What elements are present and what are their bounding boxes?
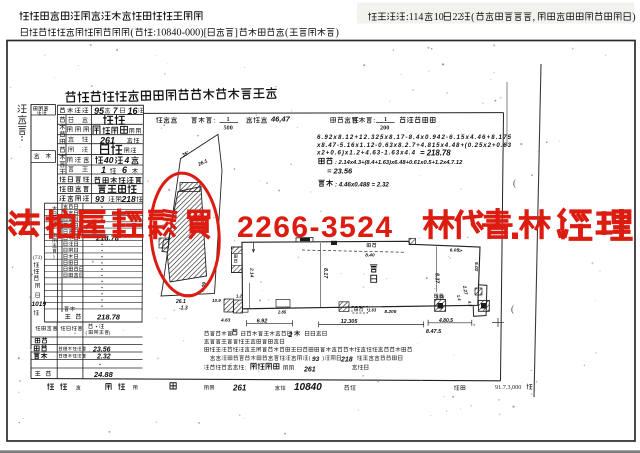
svg-text:35': 35' [181,150,190,159]
svg-text:): ) [632,12,635,23]
svg-text:4: 4 [124,155,130,165]
svg-text:): ) [322,355,324,362]
svg-text:26.1: 26.1 [196,158,208,168]
svg-text:1.4: 1.4 [456,294,462,301]
svg-text:8.40: 8.40 [365,253,375,259]
svg-text:12.305: 12.305 [341,319,359,325]
svg-text:91.7.3,000: 91.7.3,000 [495,384,521,391]
svg-text:10: 10 [434,12,444,23]
svg-text:6.92x8.12+12.325x8.17-8.4x0.94: 6.92x8.12+12.325x8.17-8.4x0.942-6.15x4.4… [317,134,512,141]
svg-text::10840-000)[: :10840-000)[ [153,28,207,39]
svg-text:1: 1 [384,116,387,123]
svg-text:1: 1 [101,165,106,175]
svg-text:6: 6 [122,165,128,175]
svg-text:): ) [53,253,55,260]
svg-text::: : [373,117,375,125]
svg-text:1.63: 1.63 [368,308,377,313]
svg-text:218: 218 [121,194,136,204]
svg-text:(: ( [86,330,88,337]
svg-text:2.27: 2.27 [462,284,469,295]
svg-text:22: 22 [452,12,462,23]
svg-text:24.88: 24.88 [93,370,114,379]
svg-text:8.37: 8.37 [434,273,440,284]
svg-text:8.47.5: 8.47.5 [426,329,442,335]
svg-text:]: ] [235,28,238,39]
svg-text:(: ( [309,355,311,362]
svg-text:= 23.56: = 23.56 [327,167,353,176]
svg-text:46,47: 46,47 [270,115,291,124]
svg-text::: : [245,365,247,371]
svg-text:26.1: 26.1 [175,299,186,305]
svg-text:1019: 1019 [32,301,47,308]
svg-text:200: 200 [380,125,389,132]
svg-text:10840: 10840 [294,382,322,393]
svg-text:2.32: 2.32 [96,354,111,361]
svg-text:-1.3: -1.3 [179,306,188,312]
svg-text:: 2.14x4.3+(8.4+1.63)x6.48+0.6: : 2.14x4.3+(8.4+1.63)x6.48+0.61x0.5+1.2x… [335,160,463,166]
svg-text:93: 93 [95,194,105,204]
svg-text:= 218.78: = 218.78 [420,148,451,157]
svg-text:: 4.46x0.488 = 2.32: : 4.46x0.488 = 2.32 [335,182,389,189]
svg-text:2: 2 [288,332,293,339]
svg-text:6.92: 6.92 [257,318,268,324]
svg-text:93: 93 [312,356,320,363]
svg-text:8.205: 8.205 [384,309,396,315]
svg-text:4.63: 4.63 [220,318,231,324]
svg-text:218.78: 218.78 [96,313,121,322]
svg-text::: : [213,117,215,125]
svg-text:40: 40 [103,155,114,165]
svg-text:95: 95 [94,106,105,116]
svg-text:261: 261 [303,367,316,374]
svg-text:23.56: 23.56 [92,346,111,353]
svg-text:1.2: 1.2 [236,294,242,299]
svg-text:(: ( [511,304,514,314]
svg-text:4.80.5: 4.80.5 [438,318,453,324]
svg-text::114: :114 [406,12,423,23]
svg-text:x8.47-5.16x1.12-0.63x8.2.7+4.8: x8.47-5.16x1.12-0.63x8.2.7+4.815x4.48+(0… [316,142,512,149]
svg-text:6.05: 6.05 [450,248,460,254]
svg-text:(: ( [285,28,289,39]
svg-text:x2+0.6)x1.2+4.63-1.63x4.4: x2+0.6)x1.2+4.63-1.63x4.4 [316,149,416,156]
svg-text:16: 16 [128,106,139,116]
svg-text:): ) [109,330,111,337]
svg-text:,: , [533,12,536,23]
svg-text:5.02: 5.02 [473,262,479,272]
svg-text:(: ( [130,28,134,39]
svg-text:7: 7 [113,107,118,116]
svg-text:4.2: 4.2 [467,299,473,307]
svg-text:218: 218 [340,357,353,364]
svg-text:2.85: 2.85 [277,310,287,315]
svg-text:10.9: 10.9 [212,298,221,303]
svg-text:261: 261 [232,384,247,393]
svg-text:2266-3524: 2266-3524 [237,211,392,244]
svg-text:261: 261 [99,135,115,145]
svg-text:(73): (73) [33,254,42,261]
svg-text:1: 1 [227,116,230,123]
svg-text:): ) [335,28,338,39]
svg-text:2.14: 2.14 [249,267,255,278]
svg-text:(: ( [513,178,516,188]
svg-text:8.17: 8.17 [322,268,328,279]
